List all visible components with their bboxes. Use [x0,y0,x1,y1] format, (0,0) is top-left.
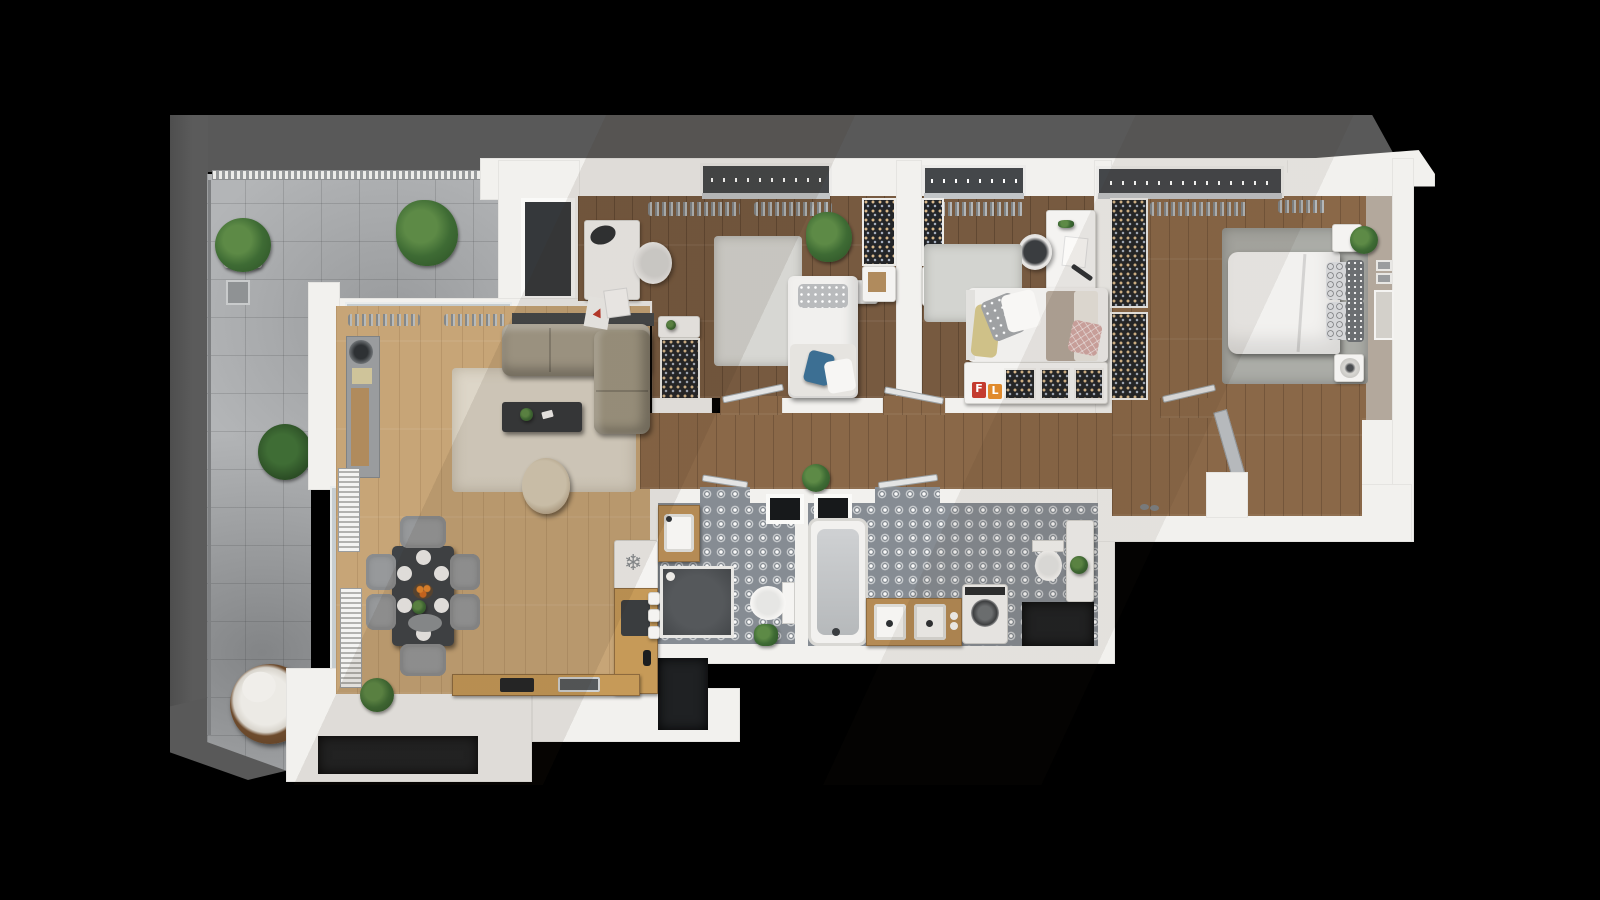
curtain-bedroom1-left [648,202,740,216]
terrace-railing-left [208,180,211,735]
fridge: ❄ [614,540,658,590]
kitchen-sink-corner [621,600,650,636]
plate [416,550,431,565]
door-tongue-bath [875,487,940,503]
table-greens [412,600,426,614]
table-lamp-master [1340,358,1360,378]
dining-chair [450,594,480,630]
plate [434,566,449,581]
open-wardrobe-master-2 [1110,312,1148,400]
shoes [1140,504,1149,510]
fruit-bowl [413,583,433,599]
shower-head [666,572,675,581]
shower-room-plant [754,624,778,646]
console-pad [352,368,372,384]
hallway-plant [802,464,830,492]
terrace-plant-2 [258,424,312,480]
curtain-living-2 [444,314,506,326]
vanity-tap-1 [886,620,893,627]
dining-chair [366,594,396,630]
console-wood-board [351,388,369,466]
shelf-plant-b1 [666,320,676,330]
kitchen-counter-bottom [452,674,640,696]
serving-tray [408,614,442,632]
terrace-tree [396,200,458,266]
faucet-wc [666,516,672,522]
low-wardrobe-rail-2 [1040,368,1070,400]
open-wardrobe-master-1 [1110,198,1148,308]
low-wardrobe-rail-3 [1074,368,1104,400]
window-bedroom1 [700,163,832,196]
low-wardrobe-rail-1 [1004,368,1036,400]
desk-papers-b2 [1063,237,1088,267]
living-plant-south [360,678,394,712]
bathroom-plant [1070,556,1088,574]
wardrobe-shelf-b1-sw [658,316,700,338]
bathtub-faucet [832,628,840,636]
snowflake-icon: ❄ [624,553,642,575]
floor-plan-render: ❄ F L [0,0,1600,900]
curtain-master-left [1150,202,1248,216]
plate [434,598,449,613]
open-wardrobe-b1-ne [862,198,896,266]
roof-band-left [170,115,208,750]
entry-wall-stub [1206,472,1248,518]
window-muntins [931,179,1017,183]
skylight-panel [521,198,575,300]
console-lamp [349,340,373,364]
window-muntins [711,178,822,182]
window-sill-b1 [702,193,830,199]
shelf-wood-box [868,272,886,292]
washer-lid [965,587,1005,595]
dining-chair [400,644,446,676]
cooktop [500,678,534,692]
paper-sheet [604,289,629,318]
sofa-cushion-line-1 [549,328,551,372]
curtain-master-right [1278,200,1326,213]
vanity-tap-2 [926,620,933,627]
wall-pier-b1-b2 [896,160,922,415]
wall-vent-panel [1376,260,1392,271]
pillow-white-b1 [823,358,856,394]
shutter-stack-1 [338,468,360,552]
curtain-living-1 [348,314,420,326]
toilet-wc-bowl [750,586,786,620]
shutter-stack-2 [340,588,362,688]
terrace-plant-1 [215,218,271,272]
pillow-dark-master-2 [1346,300,1364,342]
desk-chair-b1 [634,242,672,284]
dining-chair [400,516,446,548]
soap-bottles [950,612,958,620]
toilet-bath-bowl [1035,550,1062,581]
shoes [1150,505,1159,511]
facade-planter-recess-left [318,736,478,774]
desk-lizard-toy [1058,220,1074,228]
dining-chair [366,554,396,590]
curtain-bedroom2 [934,202,1024,216]
kitchen-faucet [643,650,651,666]
plate [397,566,412,581]
desk-chair-b2 [1018,234,1052,270]
kitchen-sink [558,677,600,692]
sofa-cushion-line-2 [596,390,648,392]
toy-block-l: L [988,384,1002,399]
facade-planter-recess-mid [658,658,708,730]
window-bedroom2 [922,165,1026,196]
pillow-dotted-b1 [798,284,848,308]
transom-window-wc [766,494,804,524]
drawer-front [648,626,660,639]
bed-master [1228,252,1340,354]
bedroom1-plant [806,212,852,262]
pillow-dark-master-1 [1346,260,1364,302]
toy-block-f: F [972,382,986,398]
plate [397,598,412,613]
drawer-front [648,609,660,622]
door-tongue-wc [700,487,750,503]
sofa-chaise [594,330,650,434]
bathtub-basin [817,529,859,635]
wall-mirror-master [1374,290,1394,340]
facade-bottom-mid [532,688,740,742]
window-muntins [1110,181,1270,185]
wall-vent-panel [1376,273,1392,284]
coffee-table-plant [520,408,533,421]
washer-drum [971,599,999,627]
open-wardrobe-b1-sw [660,338,700,400]
dining-chair [450,554,480,590]
master-plant [1350,226,1378,254]
terrace-lantern [226,280,250,305]
terrace-railing-top [212,170,498,180]
bathroom-storage-niche [1022,602,1094,646]
drawer-front [648,592,660,605]
round-armchair [522,458,570,514]
